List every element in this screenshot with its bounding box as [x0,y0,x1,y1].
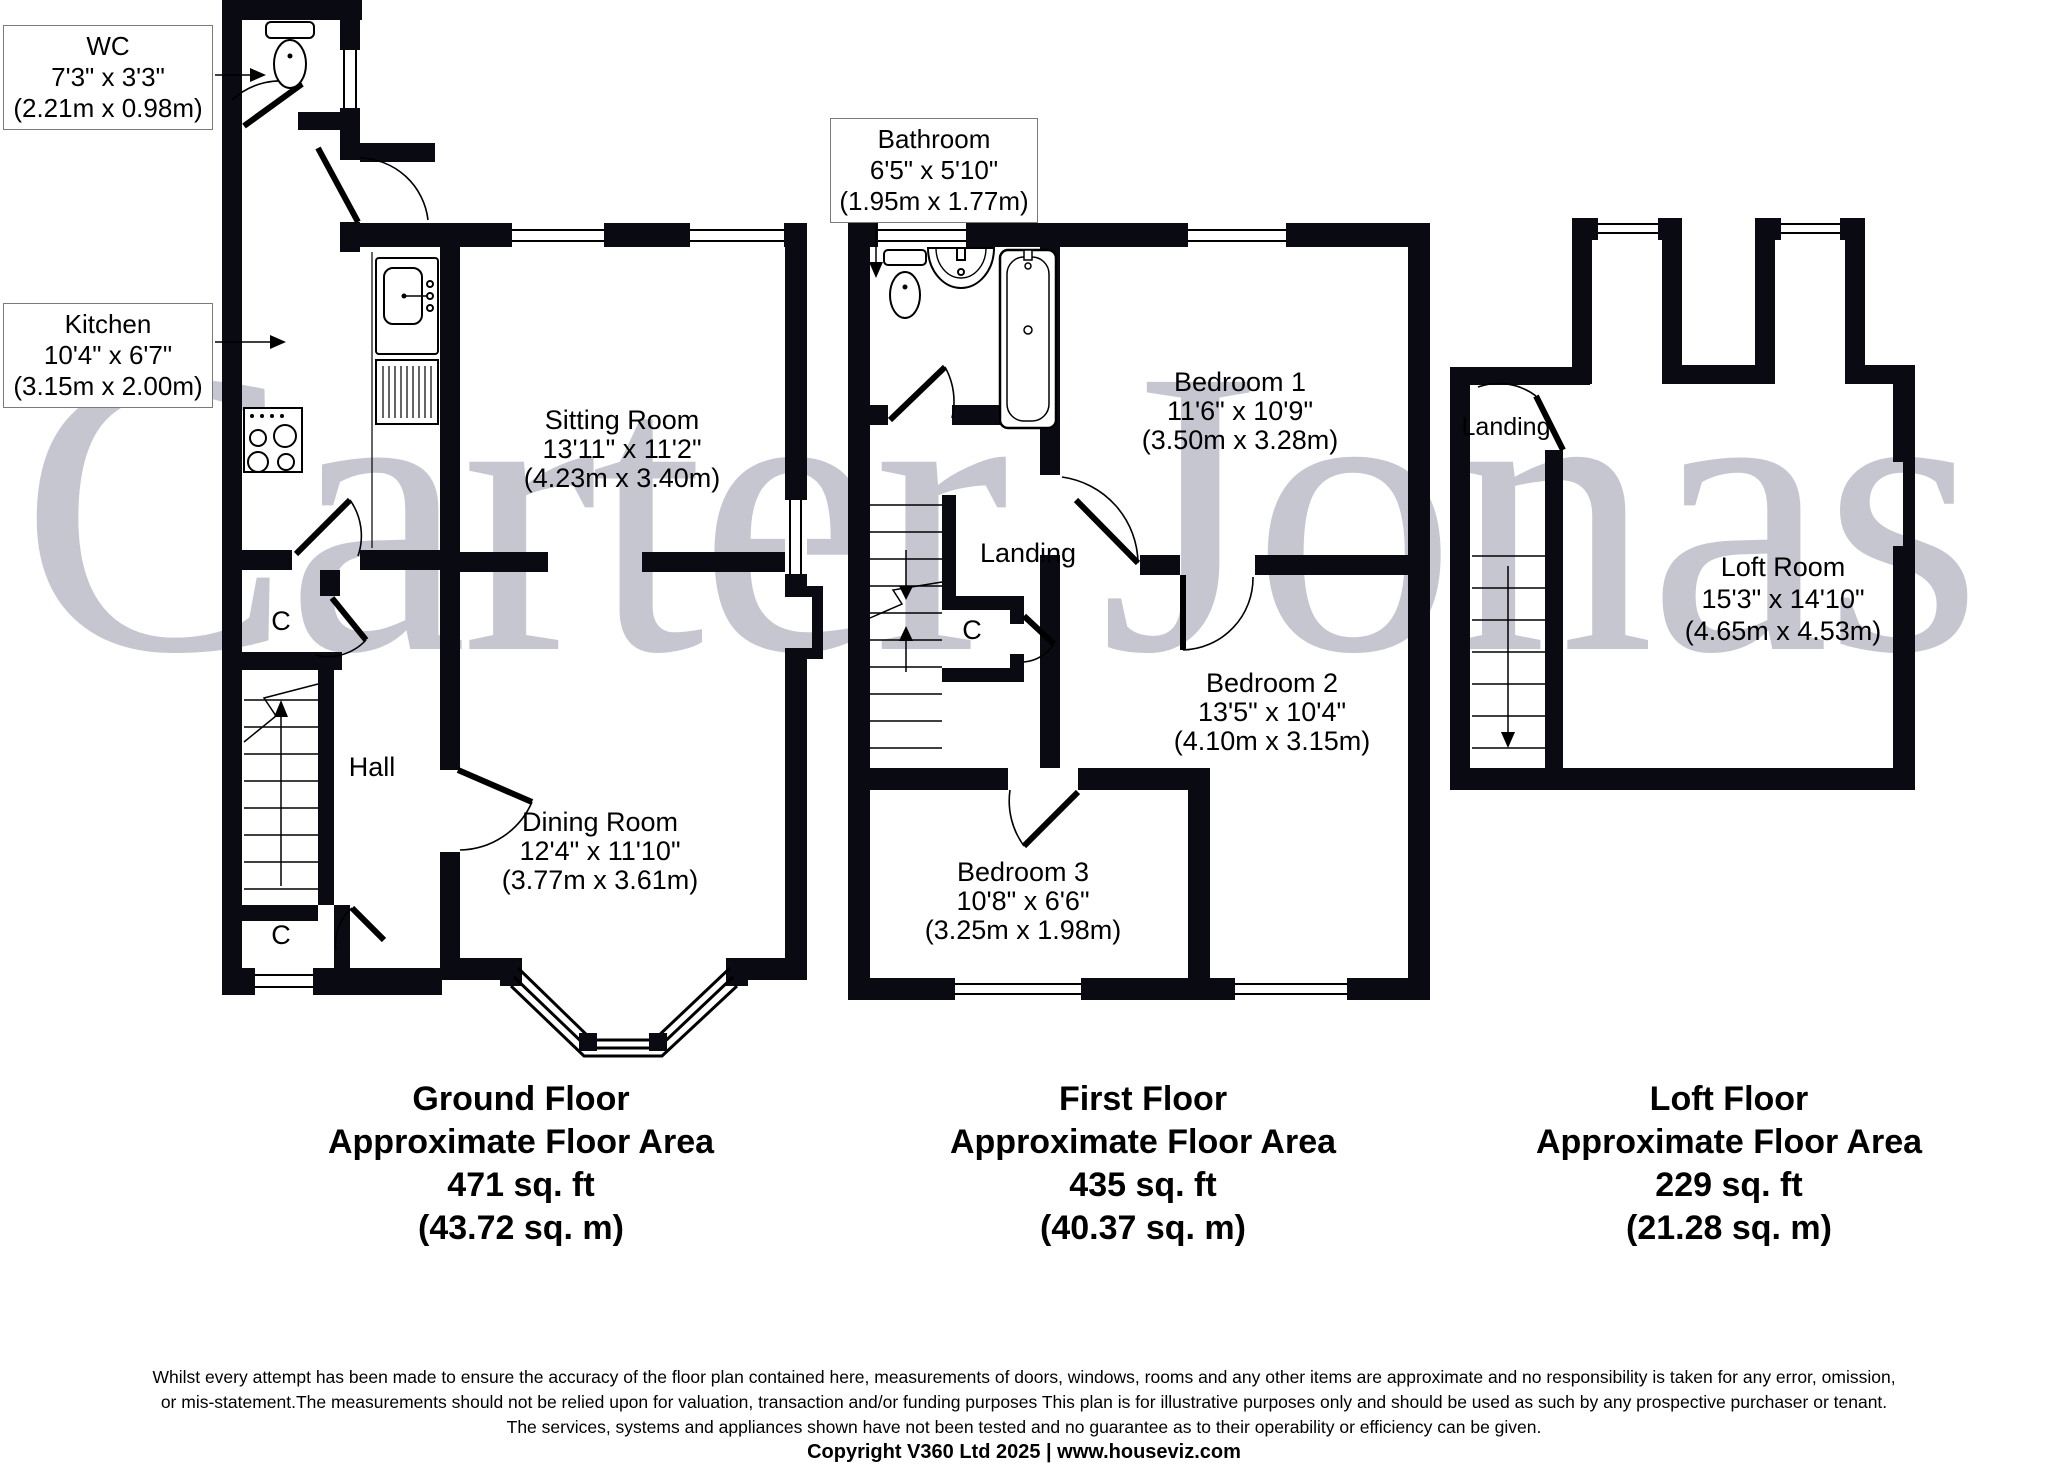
room-dimensions-metric: (1.95m x 1.77m) [833,186,1035,217]
room-dimensions-imperial: 10'8" x 6'6" [925,887,1122,916]
bedroom1-label: Bedroom 1 11'6" x 10'9" (3.50m x 3.28m) [1142,368,1339,455]
bath-icon [1000,250,1056,428]
ground-floor-plan [215,0,823,1056]
room-name: Landing [1462,413,1551,442]
first-floor-title: First Floor Approximate Floor Area 435 s… [950,1078,1336,1250]
area-label: Approximate Floor Area [950,1121,1336,1164]
loft-room-label: Loft Room 15'3" x 14'10" (4.65m x 4.53m) [1685,551,1882,647]
floorplan-page: Carter Jonas [0,0,2048,1470]
sitting-room-label: Sitting Room 13'11" x 11'2" (4.23m x 3.4… [524,406,721,493]
room-name: C [962,616,982,645]
area-imperial: 435 sq. ft [950,1164,1336,1207]
cupboard-label: C [271,921,291,950]
area-metric: (40.37 sq. m) [950,1207,1336,1250]
stairs [870,505,942,748]
area-metric: (21.28 sq. m) [1536,1207,1922,1250]
area-label: Approximate Floor Area [328,1121,714,1164]
room-name: Sitting Room [524,406,721,435]
stairs [244,684,318,889]
area-metric: (43.72 sq. m) [328,1207,714,1250]
bathroom-callout: Bathroom 6'5" x 5'10" (1.95m x 1.77m) [830,118,1038,223]
room-name: C [271,607,291,636]
room-dimensions-imperial: 11'6" x 10'9" [1142,397,1339,426]
room-dimensions-imperial: 7'3" x 3'3" [6,62,210,93]
room-name: Landing [980,539,1076,568]
copyright-line: Copyright V360 Ltd 2025 | www.houseviz.c… [0,1441,2048,1464]
loft-landing-label: Landing [1462,413,1551,442]
ground-floor-title: Ground Floor Approximate Floor Area 471 … [328,1078,714,1250]
loft-floor-plan [1450,218,1915,790]
room-dimensions-metric: (3.15m x 2.00m) [6,371,210,402]
room-name: WC [6,31,210,62]
disclaimer-line-1: Whilst every attempt has been made to en… [0,1366,2048,1388]
cupboard-label: C [271,607,291,636]
room-dimensions-metric: (2.21m x 0.98m) [6,93,210,124]
area-imperial: 229 sq. ft [1536,1164,1922,1207]
room-dimensions-metric: (4.65m x 4.53m) [1685,615,1882,647]
room-name: Bedroom 3 [925,858,1122,887]
room-name: Bathroom [833,124,1035,155]
disclaimer-line-3: The services, systems and appliances sho… [0,1416,2048,1438]
bedroom3-label: Bedroom 3 10'8" x 6'6" (3.25m x 1.98m) [925,858,1122,945]
window [1598,218,1840,240]
toilet-icon [266,22,314,88]
drainer-icon [376,360,438,424]
room-name: Loft Room [1685,551,1882,583]
room-name: Bedroom 2 [1174,669,1371,698]
room-dimensions-imperial: 13'11" x 11'2" [524,435,721,464]
basin-icon [928,248,994,288]
toilet-icon [884,250,926,318]
hob-icon [244,408,302,472]
room-dimensions-metric: (3.25m x 1.98m) [925,916,1122,945]
room-dimensions-metric: (4.10m x 3.15m) [1174,727,1371,756]
kitchen-callout: Kitchen 10'4" x 6'7" (3.15m x 2.00m) [3,303,213,408]
room-name: Dining Room [502,808,699,837]
hall-label: Hall [349,753,396,782]
room-dimensions-imperial: 6'5" x 5'10" [833,155,1035,186]
room-dimensions-metric: (3.50m x 3.28m) [1142,426,1339,455]
room-dimensions-imperial: 15'3" x 14'10" [1685,583,1882,615]
room-name: Hall [349,753,396,782]
room-dimensions-imperial: 10'4" x 6'7" [6,340,210,371]
cupboard-label: C [962,616,982,645]
wc-callout: WC 7'3" x 3'3" (2.21m x 0.98m) [3,25,213,130]
room-dimensions-metric: (3.77m x 3.61m) [502,866,699,895]
floor-name: Ground Floor [328,1078,714,1121]
area-imperial: 471 sq. ft [328,1164,714,1207]
floor-name: Loft Floor [1536,1078,1922,1121]
bay-window [511,968,737,1056]
floor-name: First Floor [950,1078,1336,1121]
cupboard [942,596,1054,682]
door-arc [232,81,532,950]
room-dimensions-metric: (4.23m x 3.40m) [524,464,721,493]
room-dimensions-imperial: 12'4" x 11'10" [502,837,699,866]
area-label: Approximate Floor Area [1536,1121,1922,1164]
loft-floor-title: Loft Floor Approximate Floor Area 229 sq… [1536,1078,1922,1250]
bedroom2-label: Bedroom 2 13'5" x 10'4" (4.10m x 3.15m) [1174,669,1371,756]
room-name: Kitchen [6,309,210,340]
landing-label: Landing [980,539,1076,568]
stairs [1472,556,1545,748]
dining-room-label: Dining Room 12'4" x 11'10" (3.77m x 3.61… [502,808,699,895]
disclaimer-line-2: or mis-statement.The measurements should… [0,1391,2048,1413]
room-name: C [271,921,291,950]
room-name: Bedroom 1 [1142,368,1339,397]
room-dimensions-imperial: 13'5" x 10'4" [1174,698,1371,727]
